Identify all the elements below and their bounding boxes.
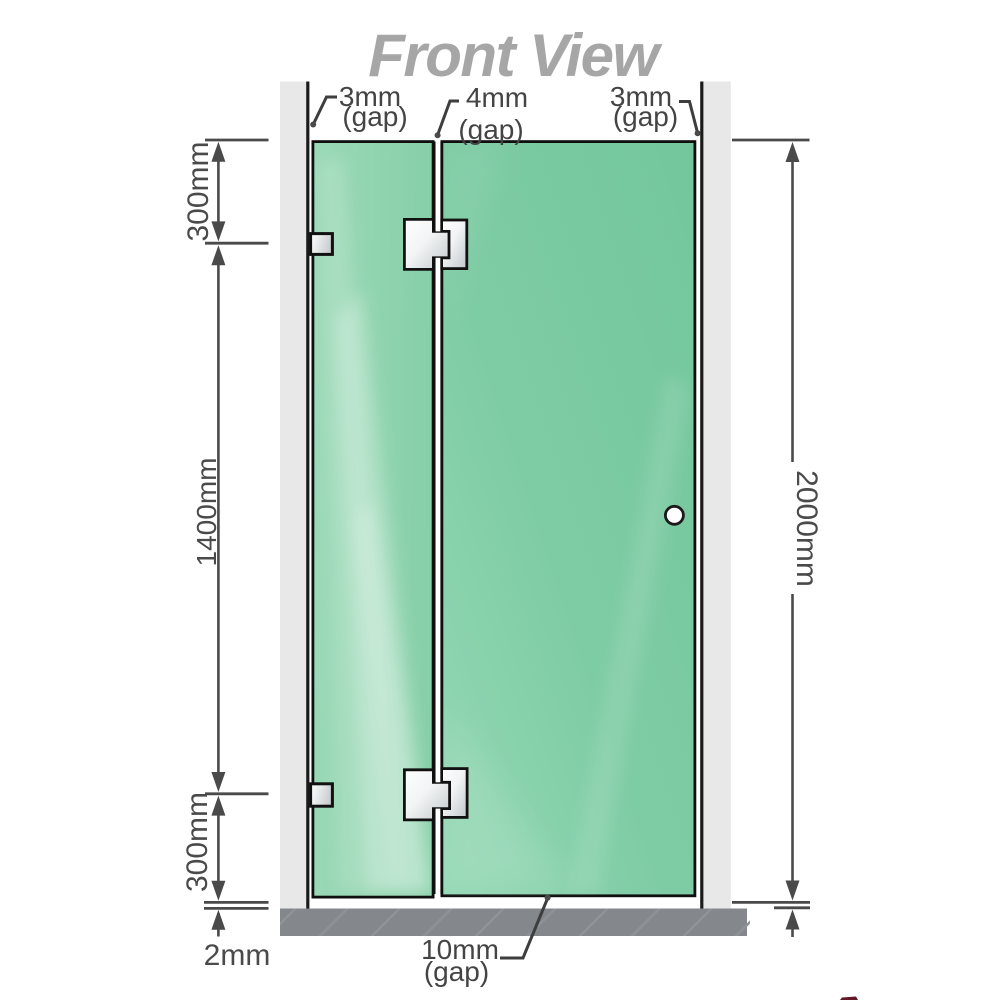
svg-text:300mm: 300mm [181, 792, 214, 892]
svg-text:300mm: 300mm [182, 141, 215, 241]
svg-text:(gap): (gap) [424, 956, 489, 987]
svg-text:Front View: Front View [368, 22, 662, 89]
svg-text:2000mm: 2000mm [790, 470, 823, 587]
svg-text:(gap): (gap) [342, 101, 407, 132]
svg-text:4mm: 4mm [466, 82, 528, 113]
svg-text:(gap): (gap) [613, 101, 678, 132]
svg-text:(gap): (gap) [458, 114, 523, 145]
svg-text:1400mm: 1400mm [191, 458, 222, 567]
svg-text:2mm: 2mm [204, 939, 271, 972]
